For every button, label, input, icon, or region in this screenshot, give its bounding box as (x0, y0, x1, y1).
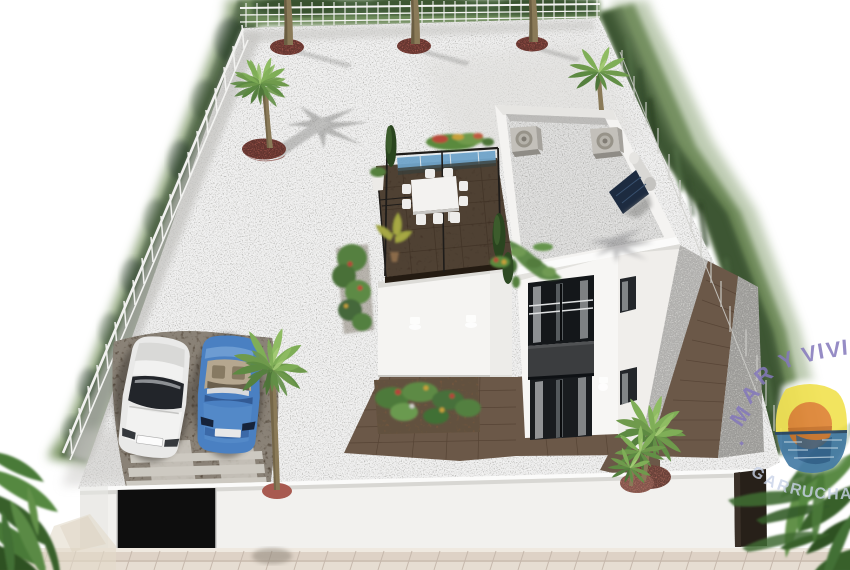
svg-text:C: C (814, 485, 827, 503)
svg-text:H: H (827, 486, 839, 503)
svg-text:A: A (840, 486, 850, 503)
